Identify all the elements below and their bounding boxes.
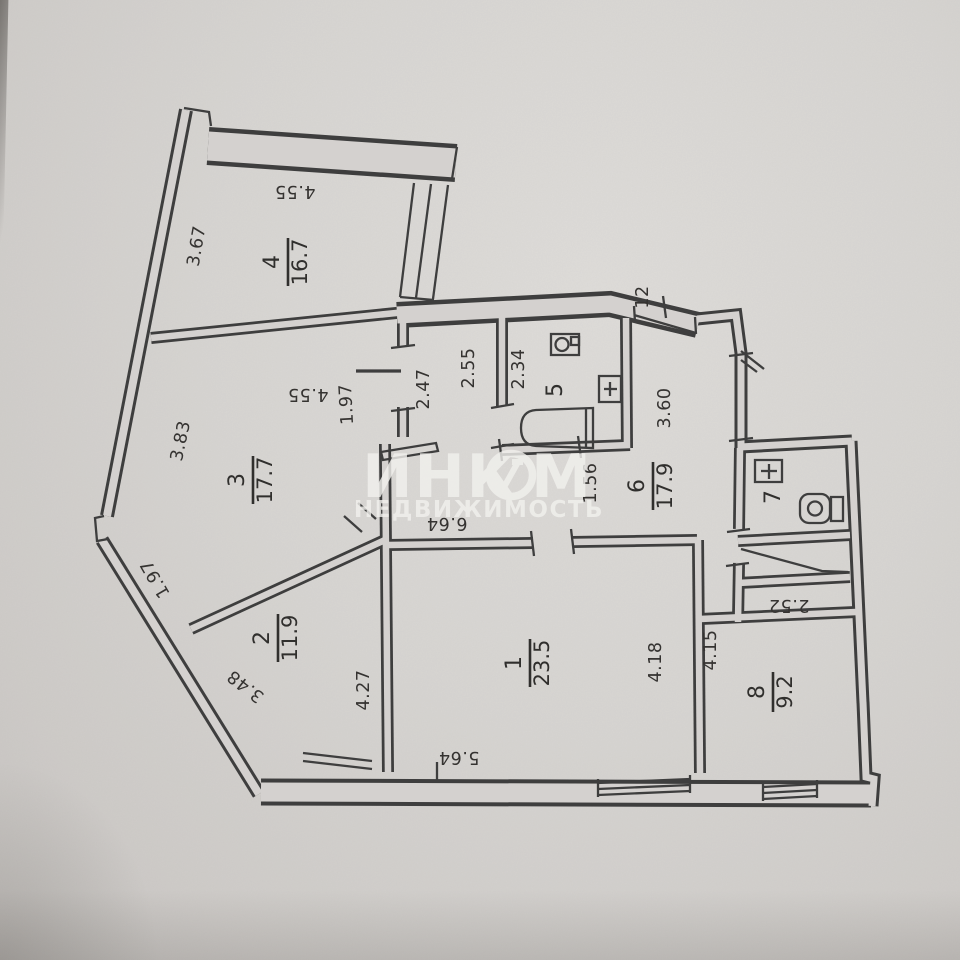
dimension-label: 4.55 <box>288 384 329 404</box>
dimension-label: 4.55 <box>275 181 316 201</box>
room-area: 9.2 <box>773 675 797 708</box>
room-area: 17.9 <box>653 463 677 510</box>
room-number: 7 <box>761 490 786 504</box>
watermark-subtitle: НЕДВИЖИМОСТЬ <box>354 497 604 523</box>
room-number: 2 <box>250 631 275 645</box>
room-number: 3 <box>225 473 250 487</box>
room-number: 5 <box>543 383 568 397</box>
room-area: 23.5 <box>530 640 554 687</box>
wall-segment <box>626 318 627 448</box>
room-number: 8 <box>745 685 770 699</box>
dimension-label: 3.60 <box>655 388 675 429</box>
room-7-label: 7 <box>761 490 786 504</box>
wall-segment <box>738 563 739 622</box>
room-number: 4 <box>260 255 285 269</box>
room-area: 17.7 <box>253 457 277 504</box>
wall-segment <box>739 448 740 529</box>
dimension-label: 12 <box>633 285 653 308</box>
dimension-label: 2.55 <box>459 348 479 389</box>
dimension-label: 2.34 <box>509 349 529 390</box>
dimension-label: 4.15 <box>701 630 721 671</box>
room-area: 16.7 <box>288 239 312 286</box>
wall-segment <box>208 146 456 163</box>
dimension-label: 5.64 <box>439 747 480 767</box>
room-number: 6 <box>625 479 650 493</box>
room-area: 11.9 <box>278 615 302 662</box>
dimension-label: 4.18 <box>646 642 666 683</box>
dimension-label: 2.47 <box>414 369 434 410</box>
dimension-label: 2.52 <box>769 595 810 615</box>
wall-segment <box>698 540 700 773</box>
room-number: 1 <box>502 656 527 670</box>
floorplan-photo: 1 23.5 2 11.9 3 17.7 4 16.7 5 <box>0 0 960 960</box>
watermark: ИНК М НЕДВИЖИМОСТЬ <box>354 442 604 523</box>
dimension-label: 4.27 <box>354 670 374 711</box>
room-5-label: 5 <box>543 383 568 397</box>
photo-edge-shadow <box>0 760 160 960</box>
wall-segment <box>388 543 533 545</box>
dimension-label: 1.97 <box>336 383 358 425</box>
wall-segment <box>573 540 697 542</box>
